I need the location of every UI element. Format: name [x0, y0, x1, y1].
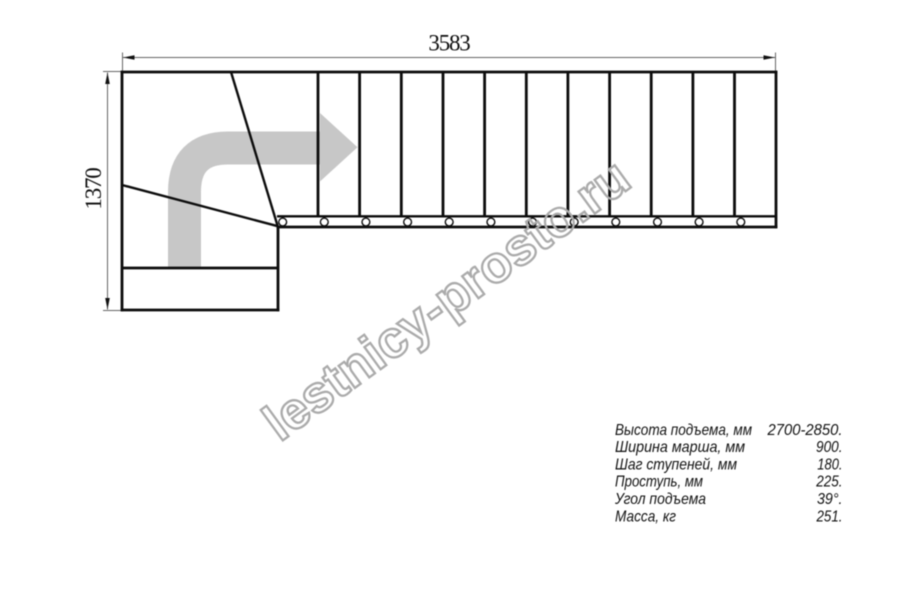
svg-text:lestnicy-prosto.ru: lestnicy-prosto.ru — [252, 147, 640, 451]
svg-text:3583: 3583 — [428, 31, 470, 56]
svg-text:900.: 900. — [816, 439, 843, 456]
svg-text:Ширина марша, мм: Ширина марша, мм — [615, 439, 745, 456]
svg-text:Высота подъема, мм: Высота подъема, мм — [615, 422, 752, 439]
svg-text:1370: 1370 — [81, 168, 106, 210]
svg-text:Угол подъема: Угол подъема — [614, 491, 706, 508]
svg-text:180.: 180. — [817, 456, 842, 473]
svg-text:Проступь, мм: Проступь, мм — [615, 474, 703, 491]
svg-text:Шаг ступеней, мм: Шаг ступеней, мм — [615, 456, 737, 473]
svg-text:225.: 225. — [815, 474, 842, 491]
svg-text:251.: 251. — [816, 508, 843, 525]
svg-text:Масса, кг: Масса, кг — [615, 508, 676, 525]
svg-text:39°.: 39°. — [817, 491, 843, 508]
svg-text:2700-2850.: 2700-2850. — [767, 422, 843, 439]
